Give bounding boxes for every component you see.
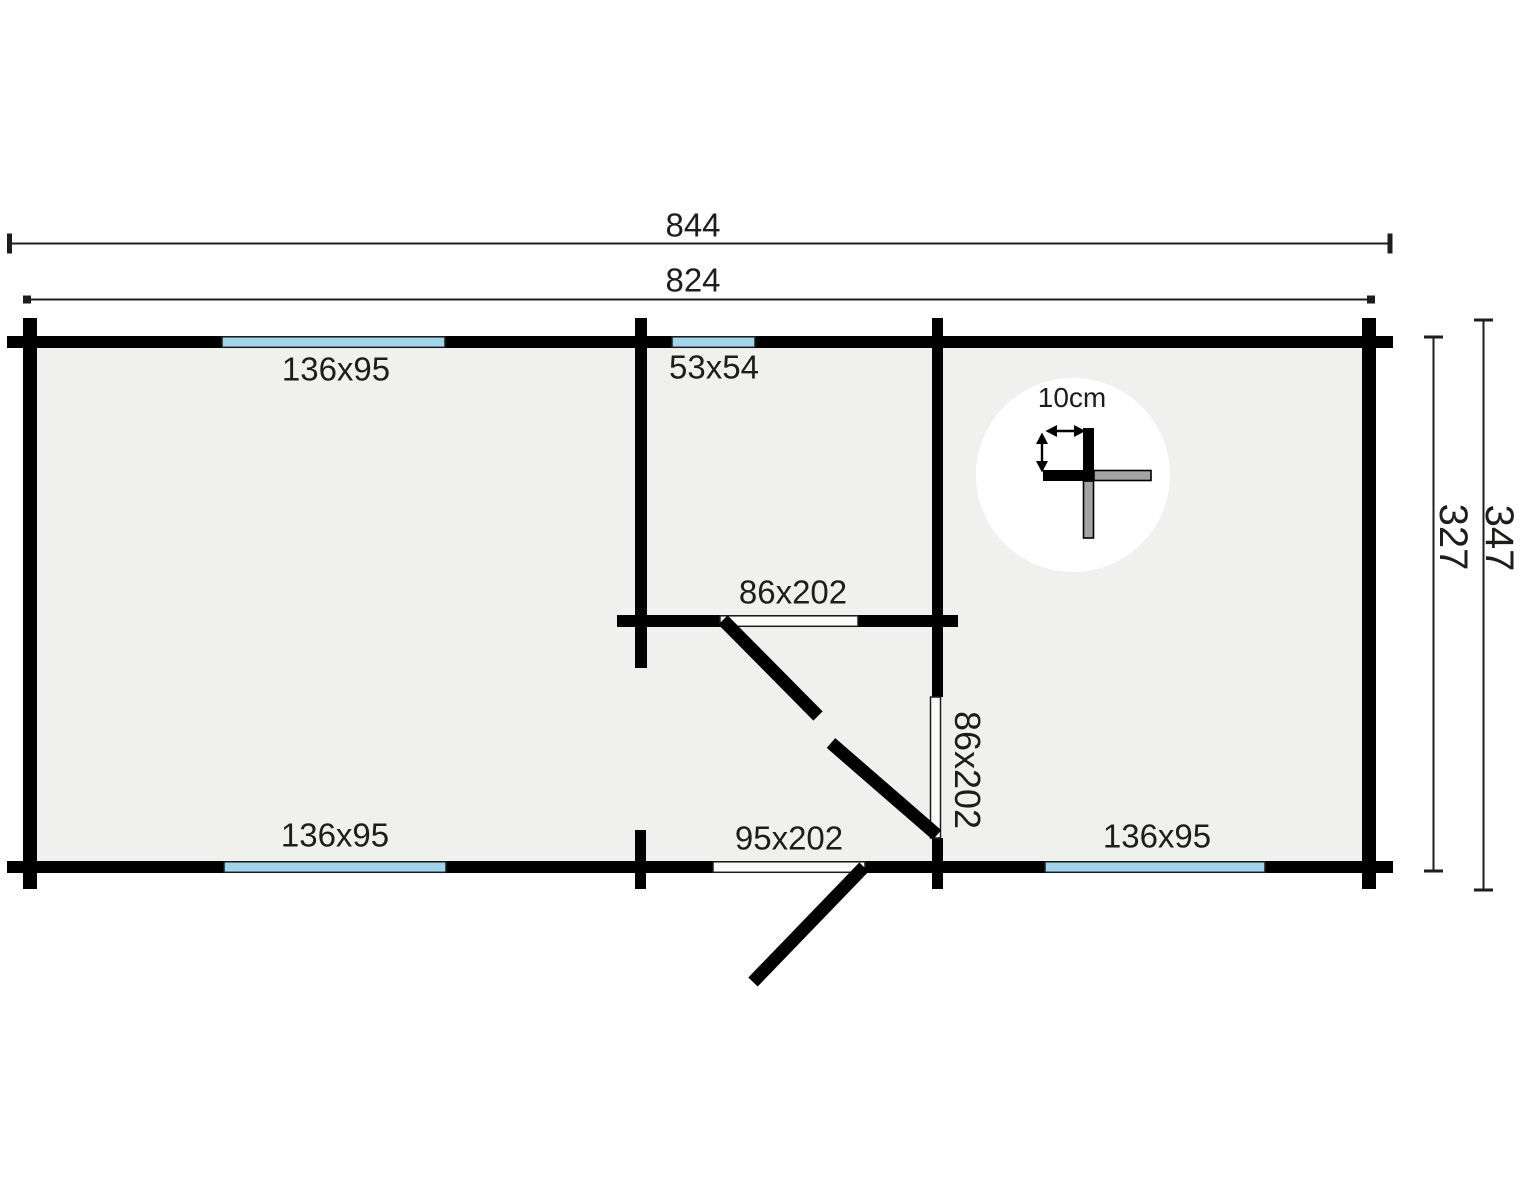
right-wall <box>1362 318 1376 889</box>
window-bottom-left-label: 136x95 <box>281 819 389 852</box>
wall-thickness-label: 10cm <box>1038 384 1106 412</box>
inner-depth-label: 327 <box>1433 504 1473 571</box>
interior-wall-right-upper <box>932 318 943 697</box>
window-top-middle-label: 53x54 <box>669 351 759 384</box>
door-swing-entrance <box>753 867 864 982</box>
dimension-tick <box>7 234 12 254</box>
window-top-left-label: 136x95 <box>282 353 390 386</box>
outer-depth-label: 347 <box>1479 505 1519 572</box>
floor-plan: 844 824 327 347 136x95 53x54 136x95 136x… <box>0 0 1530 1188</box>
door-leaf-interior-hall <box>720 616 858 627</box>
detail-log-horizontal-black <box>1043 470 1094 481</box>
window-bottom-right-label: 136x95 <box>1103 820 1211 853</box>
left-wall <box>23 318 37 889</box>
detail-log-horizontal-gray <box>1094 471 1151 481</box>
dimension-tick <box>1367 296 1375 304</box>
outer-width-label: 844 <box>665 209 720 242</box>
inner-width-label: 824 <box>665 264 720 297</box>
window-top-left <box>222 337 445 348</box>
window-bottom-right <box>1045 862 1265 873</box>
interior-side-door-label: 86x202 <box>949 711 985 829</box>
interior-wall-right-lower <box>932 838 943 889</box>
window-top-middle <box>672 337 755 348</box>
door-leaf-interior-side <box>931 697 941 838</box>
dimension-tick <box>23 296 31 304</box>
floor-area <box>30 342 1369 867</box>
door-leaf-entrance <box>713 862 865 873</box>
interior-hall-door-label: 86x202 <box>739 576 847 609</box>
window-bottom-left <box>224 862 446 873</box>
interior-wall-left-stub <box>635 830 646 889</box>
dimension-tick <box>1388 234 1393 254</box>
entrance-door-label: 95x202 <box>735 822 843 855</box>
detail-log-vertical-gray <box>1084 481 1094 538</box>
